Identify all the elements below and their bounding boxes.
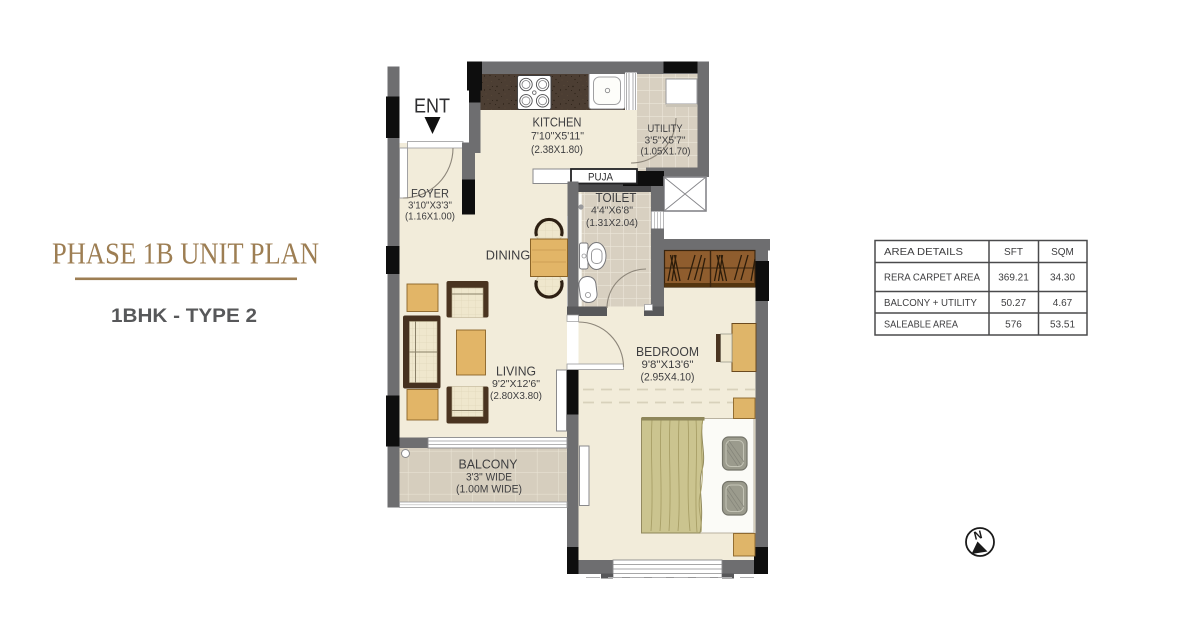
svg-text:3'3" WIDE: 3'3" WIDE	[466, 472, 512, 484]
svg-text:RERA CARPET AREA: RERA CARPET AREA	[884, 273, 980, 284]
svg-text:7'10"X5'11": 7'10"X5'11"	[531, 131, 584, 143]
svg-text:UTILITY: UTILITY	[648, 123, 683, 135]
svg-text:(1.05X1.70): (1.05X1.70)	[641, 146, 691, 158]
svg-text:4'4"X6'8": 4'4"X6'8"	[591, 205, 633, 217]
svg-text:3'10"X3'3": 3'10"X3'3"	[408, 201, 452, 212]
svg-text:(1.16X1.00): (1.16X1.00)	[405, 212, 455, 223]
svg-text:34.30: 34.30	[1050, 273, 1075, 284]
svg-text:53.51: 53.51	[1050, 320, 1075, 331]
svg-text:SALEABLE AREA: SALEABLE AREA	[884, 320, 958, 331]
svg-text:4.67: 4.67	[1053, 298, 1073, 309]
svg-text:9'8"X13'6": 9'8"X13'6"	[642, 359, 694, 371]
svg-text:(1.00M WIDE): (1.00M WIDE)	[456, 484, 522, 496]
svg-text:SQM: SQM	[1051, 247, 1074, 258]
svg-text:KITCHEN: KITCHEN	[533, 116, 582, 130]
svg-text:LIVING: LIVING	[496, 365, 536, 379]
svg-text:BALCONY + UTILITY: BALCONY + UTILITY	[884, 298, 977, 309]
svg-text:BALCONY: BALCONY	[459, 457, 518, 472]
svg-text:50.27: 50.27	[1001, 298, 1026, 309]
svg-text:BEDROOM: BEDROOM	[636, 344, 699, 359]
svg-text:576: 576	[1005, 320, 1022, 331]
svg-text:(2.80X3.80): (2.80X3.80)	[490, 390, 542, 402]
svg-text:SFT: SFT	[1004, 247, 1023, 258]
svg-text:(1.31X2.04): (1.31X2.04)	[586, 217, 638, 229]
svg-text:1BHK - TYPE 2: 1BHK - TYPE 2	[111, 305, 257, 327]
svg-text:(2.38X1.80): (2.38X1.80)	[531, 144, 583, 156]
svg-text:9'2"X12'6": 9'2"X12'6"	[492, 378, 540, 390]
svg-text:DINING: DINING	[486, 249, 531, 263]
svg-text:TOILET: TOILET	[596, 191, 637, 205]
svg-text:PHASE 1B UNIT PLAN: PHASE 1B UNIT PLAN	[52, 236, 319, 271]
svg-text:PUJA: PUJA	[588, 172, 614, 184]
svg-text:(2.95X4.10): (2.95X4.10)	[641, 372, 695, 384]
svg-text:369.21: 369.21	[998, 273, 1029, 284]
svg-text:AREA DETAILS: AREA DETAILS	[884, 247, 963, 258]
svg-text:ENT: ENT	[414, 96, 450, 118]
svg-text:FOYER: FOYER	[411, 187, 449, 201]
